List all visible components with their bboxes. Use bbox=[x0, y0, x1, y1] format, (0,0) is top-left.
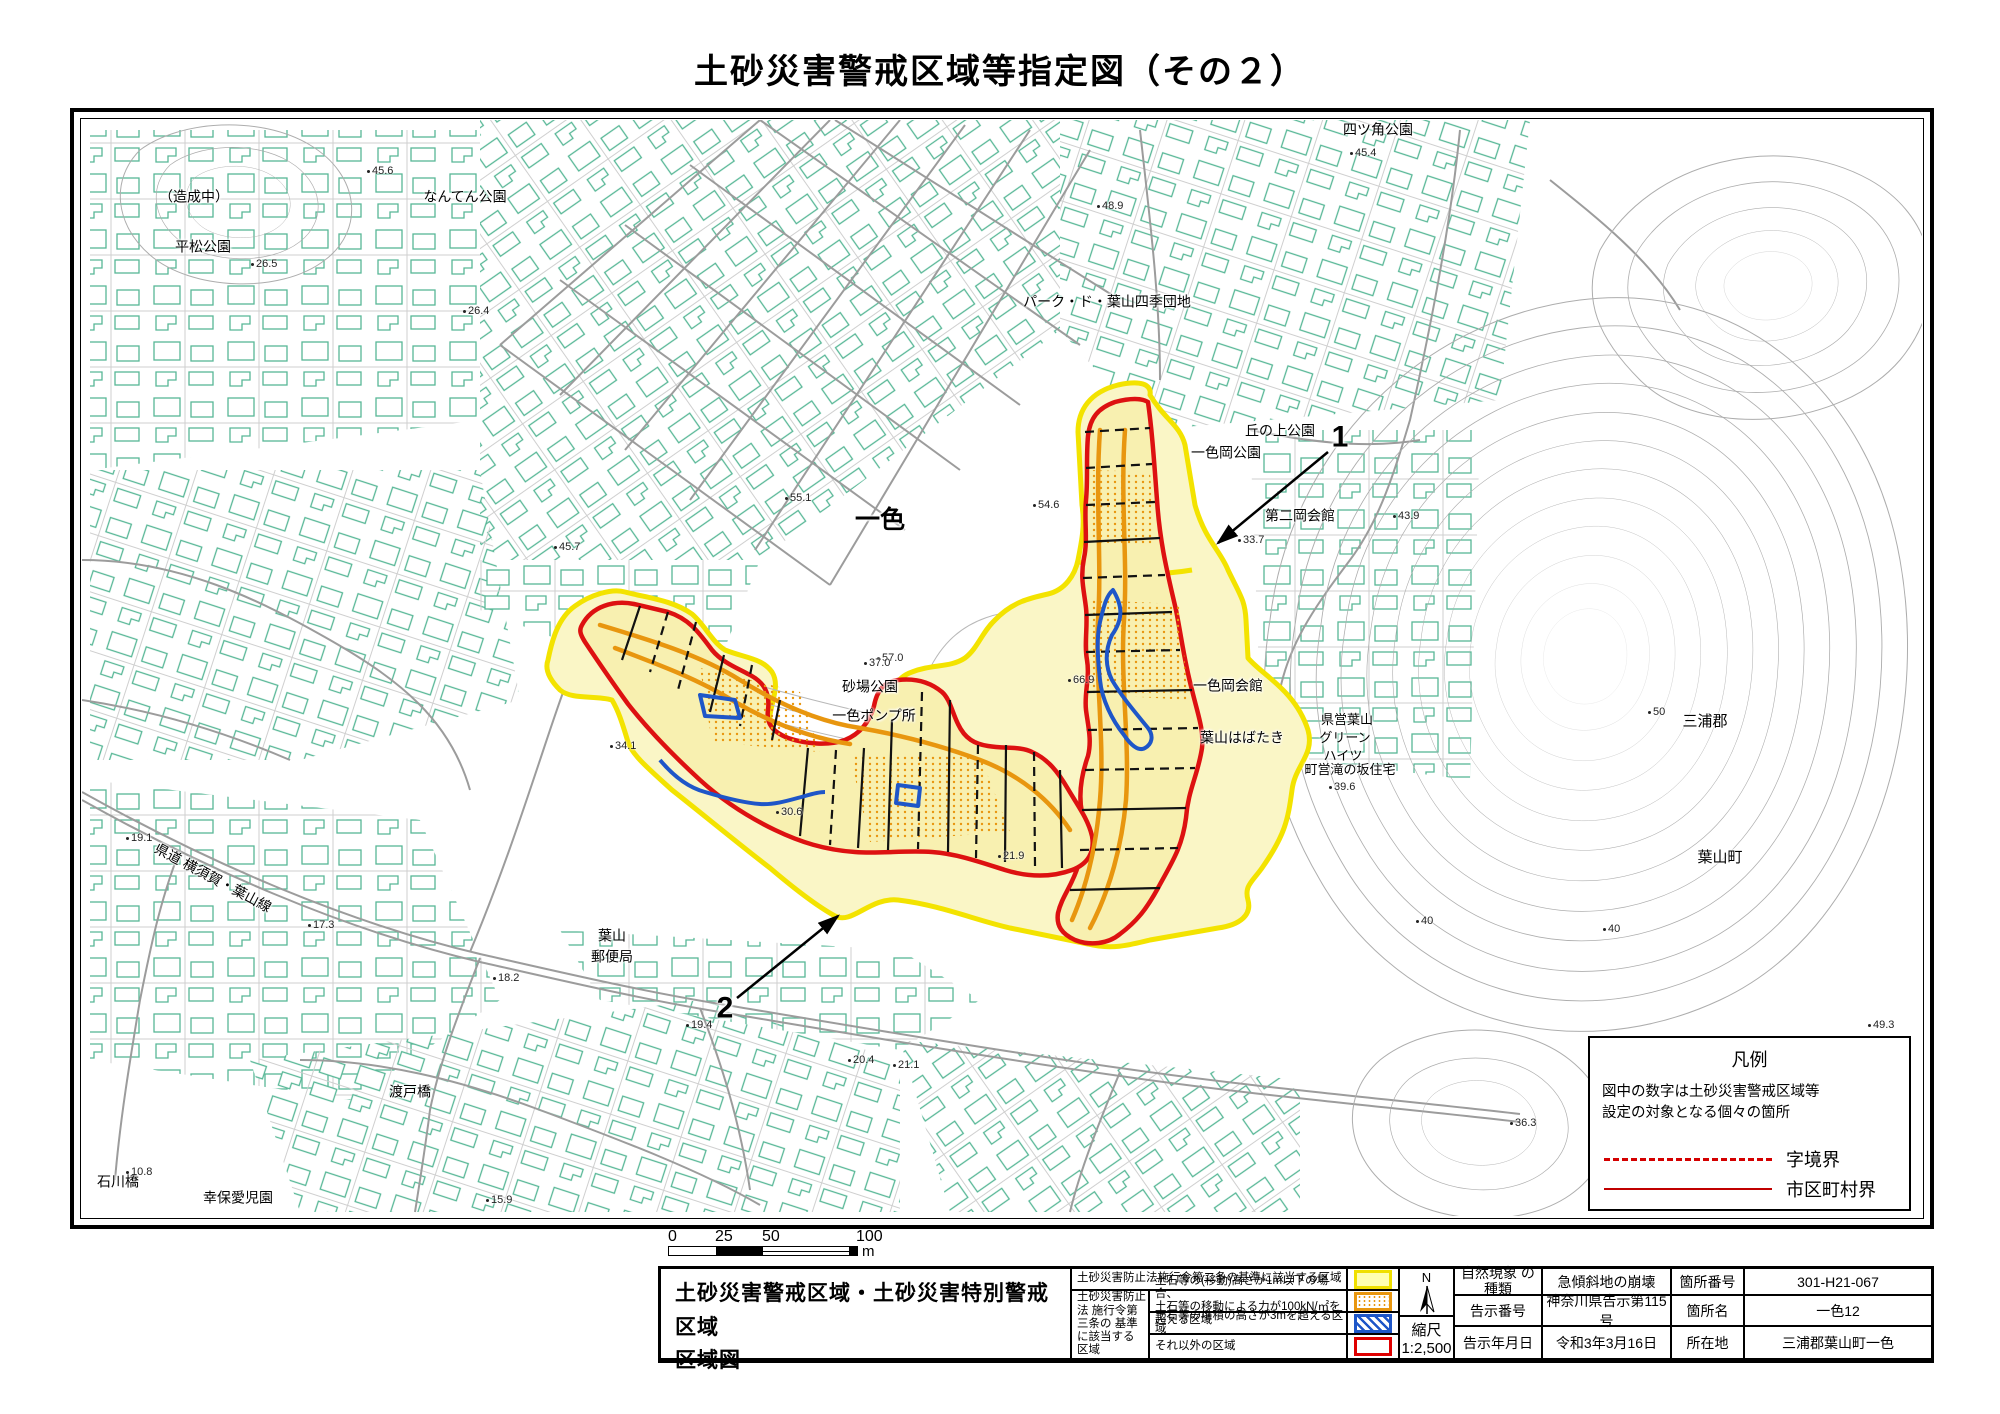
scale-bar-segments bbox=[668, 1246, 858, 1256]
solid-red-line-sample bbox=[1604, 1188, 1772, 1190]
val-notice-date: 令和3年3月16日 bbox=[1543, 1327, 1672, 1358]
legend-box: 凡例 図中の数字は土砂災害警戒区域等 設定の対象となる個々の箇所 字境界 市区町… bbox=[1588, 1036, 1911, 1211]
north-cell: N bbox=[1400, 1269, 1455, 1317]
legend-row-other: それ以外の区域 bbox=[1150, 1335, 1348, 1358]
info-table: 土砂災害警戒区域・土砂災害特別警戒区域 区域図 土砂災害防止法施行令第二条の基準… bbox=[658, 1266, 1934, 1363]
scale-unit: m bbox=[862, 1243, 875, 1260]
swatch-yellow-cell bbox=[1348, 1269, 1400, 1291]
legend-title: 凡例 bbox=[1590, 1046, 1909, 1072]
legend-note: 図中の数字は土砂災害警戒区域等 設定の対象となる個々の箇所 bbox=[1602, 1082, 1909, 1124]
north-arrow-icon bbox=[1416, 1285, 1438, 1315]
legend-item-municipal-boundary: 市区町村界 bbox=[1604, 1176, 1876, 1202]
hdr-site-no: 箇所番号 bbox=[1672, 1269, 1745, 1296]
hdr-notice-date: 告示年月日 bbox=[1455, 1327, 1543, 1358]
debris-force-swatch bbox=[1354, 1292, 1392, 1311]
other-zone-swatch bbox=[1354, 1337, 1392, 1356]
swatch-blue-cell bbox=[1348, 1313, 1400, 1335]
legend-article3-label: 土砂災害防止法 施行令第三条の 基準に該当する 区域 bbox=[1072, 1291, 1150, 1358]
sheet-title-cell: 土砂災害警戒区域・土砂災害特別警戒区域 区域図 bbox=[661, 1269, 1072, 1358]
val-site-no: 301-H21-067 bbox=[1745, 1269, 1931, 1296]
debris-pile-swatch bbox=[1354, 1314, 1392, 1333]
dashed-red-line-sample bbox=[1604, 1158, 1772, 1161]
val-notice-no: 神奈川県告示第115号 bbox=[1543, 1296, 1672, 1327]
legend-item-aza-boundary: 字境界 bbox=[1604, 1146, 1840, 1172]
swatch-red-cell bbox=[1348, 1335, 1400, 1358]
warning-zone-swatch bbox=[1354, 1270, 1392, 1289]
hdr-location: 所在地 bbox=[1672, 1327, 1745, 1358]
hdr-phenomenon: 自然現象 の種類 bbox=[1455, 1269, 1543, 1296]
val-site-name: 一色12 bbox=[1745, 1296, 1931, 1327]
val-location: 三浦郡葉山町一色 bbox=[1745, 1327, 1931, 1358]
hdr-site-name: 箇所名 bbox=[1672, 1296, 1745, 1327]
north-label: N bbox=[1422, 1270, 1431, 1285]
hdr-notice-no: 告示番号 bbox=[1455, 1296, 1543, 1327]
swatch-orange-cell bbox=[1348, 1291, 1400, 1313]
legend-row-pile: 土石等の堆積の高さが3mを超える区域 bbox=[1150, 1313, 1348, 1335]
scale-cell: 縮尺 1:2,500 bbox=[1400, 1317, 1455, 1358]
